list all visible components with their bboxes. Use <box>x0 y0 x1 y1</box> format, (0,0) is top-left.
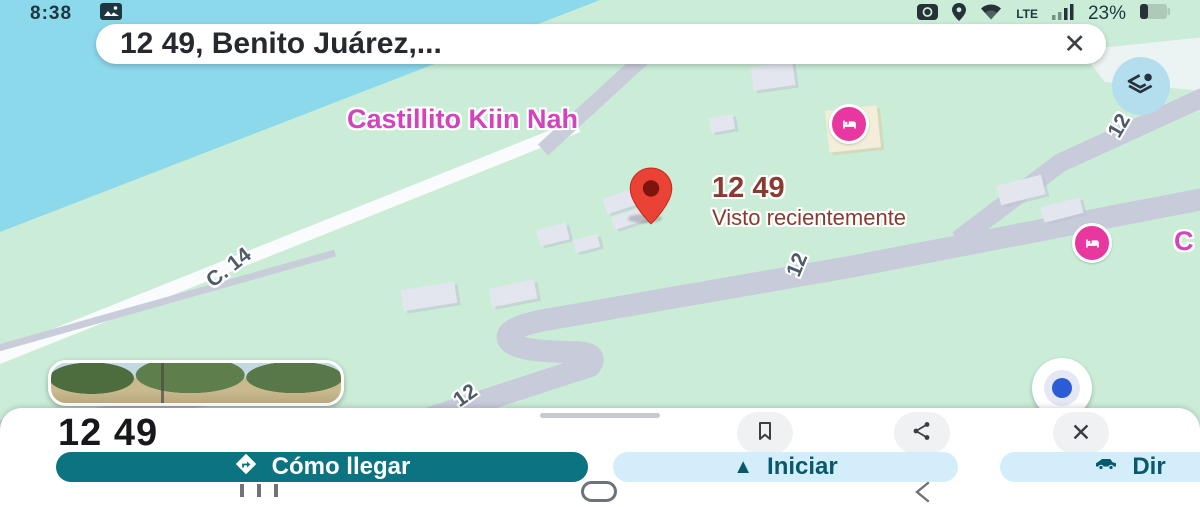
nav-home-button[interactable] <box>581 481 617 502</box>
dir-label: Dir <box>1132 453 1165 481</box>
street-view-thumbnail[interactable] <box>48 360 344 406</box>
vehicle-icon <box>1094 452 1118 483</box>
nav-recents-button[interactable] <box>240 484 278 497</box>
my-location-dot <box>1052 378 1072 398</box>
search-bar[interactable]: 12 49, Benito Juárez,... ✕ <box>96 24 1106 64</box>
directions-button[interactable]: Cómo llegar <box>56 452 588 482</box>
my-location-ring <box>1044 370 1080 406</box>
layers-icon <box>1125 68 1157 105</box>
share-button[interactable] <box>894 412 950 454</box>
directions-label: Cómo llegar <box>272 453 411 481</box>
lodging-icon[interactable] <box>829 104 869 144</box>
search-query[interactable]: 12 49, Benito Juárez,... <box>120 27 1053 61</box>
close-icon[interactable]: ✕ <box>1053 31 1086 58</box>
sheet-drag-handle[interactable] <box>540 413 660 418</box>
network-type-label: LTE <box>1016 8 1038 20</box>
pin-place-subtitle: Visto recientemente <box>712 205 906 231</box>
layers-button[interactable] <box>1112 57 1170 115</box>
road-minor-gray <box>0 253 335 349</box>
start-label: Iniciar <box>767 453 838 481</box>
pin-place-title: 12 49 <box>712 172 906 205</box>
close-sheet-button[interactable]: ✕ <box>1053 412 1109 454</box>
road-steep-top <box>543 50 652 150</box>
poi-label-castillito[interactable]: Castillito Kiin Nah <box>347 104 578 135</box>
poi-label-partial[interactable]: C <box>1174 226 1194 257</box>
place-title: 12 49 <box>58 412 158 455</box>
lodging-icon[interactable] <box>1072 223 1112 263</box>
map-pin[interactable] <box>626 166 676 231</box>
dir-button[interactable]: Dir <box>1000 452 1200 482</box>
close-icon: ✕ <box>1071 421 1092 446</box>
start-navigation-button[interactable]: ▲ Iniciar <box>613 452 958 482</box>
bookmark-button[interactable] <box>737 412 793 454</box>
photo-icon <box>100 3 122 25</box>
battery-icon <box>1140 4 1170 24</box>
bookmark-icon <box>753 419 777 448</box>
pin-place-label[interactable]: 12 49 Visto recientemente <box>712 172 906 231</box>
share-icon <box>910 419 934 448</box>
camera-icon <box>917 4 938 25</box>
location-icon <box>952 3 966 26</box>
google-maps-screen: 12 12 12 C. 14 Castillito Kiin Nah C 12 … <box>0 0 1200 507</box>
wifi-icon <box>980 3 1002 25</box>
battery-percent: 23% <box>1088 3 1126 25</box>
nav-back-button[interactable] <box>912 480 934 507</box>
street-view-pole <box>161 363 164 403</box>
signal-icon <box>1052 4 1074 25</box>
clock: 8:38 <box>30 3 72 25</box>
navigate-icon: ▲ <box>733 457 753 477</box>
directions-icon <box>234 452 258 483</box>
